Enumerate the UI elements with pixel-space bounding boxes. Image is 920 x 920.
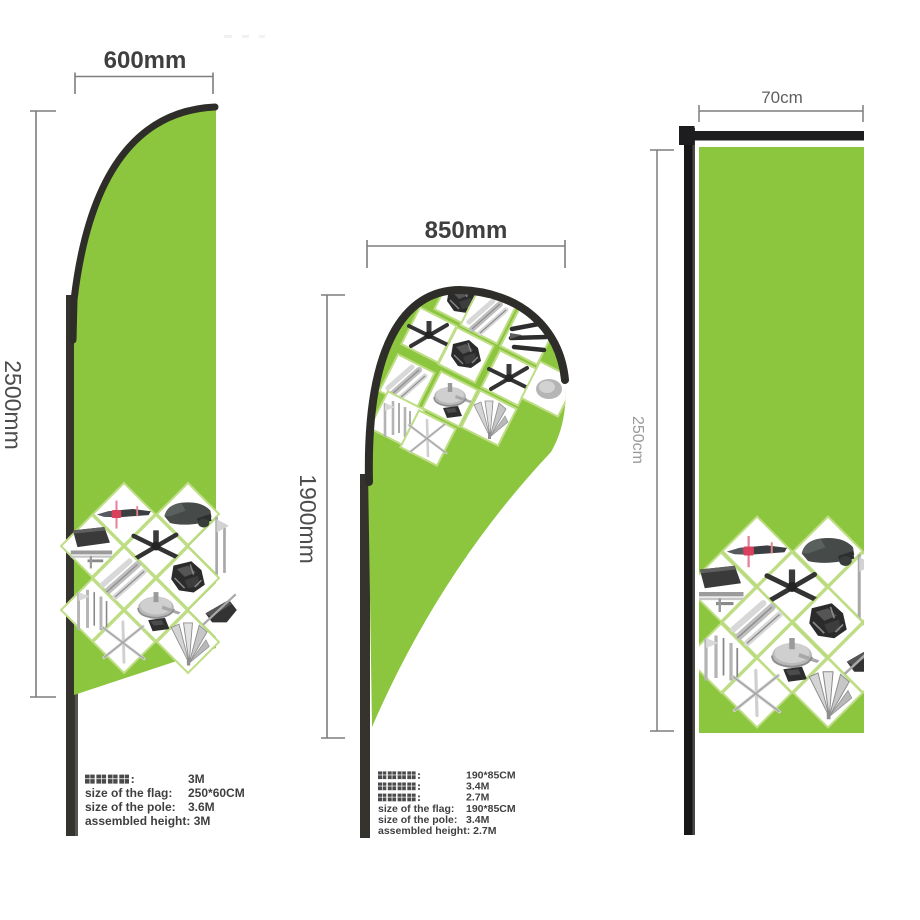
svg-text:2500mm: 2500mm [0, 360, 26, 449]
svg-text:assembled height: 3M: assembled height: 3M [85, 814, 210, 828]
svg-text:1900mm: 1900mm [295, 474, 321, 563]
svg-text:3M: 3M [188, 772, 205, 786]
svg-text:size of the pole:: size of the pole: [85, 800, 176, 814]
svg-text:assembled height: 2.7M: assembled height: 2.7M [378, 825, 497, 837]
svg-text:250cm: 250cm [629, 416, 646, 464]
svg-text:size of the flag:: size of the flag: [85, 786, 172, 800]
svg-text:850mm: 850mm [425, 217, 508, 244]
svg-text:600mm: 600mm [104, 47, 187, 74]
svg-text:3.6M: 3.6M [188, 800, 215, 814]
svg-text:250*60CM: 250*60CM [188, 786, 245, 800]
svg-text:70cm: 70cm [761, 88, 803, 107]
